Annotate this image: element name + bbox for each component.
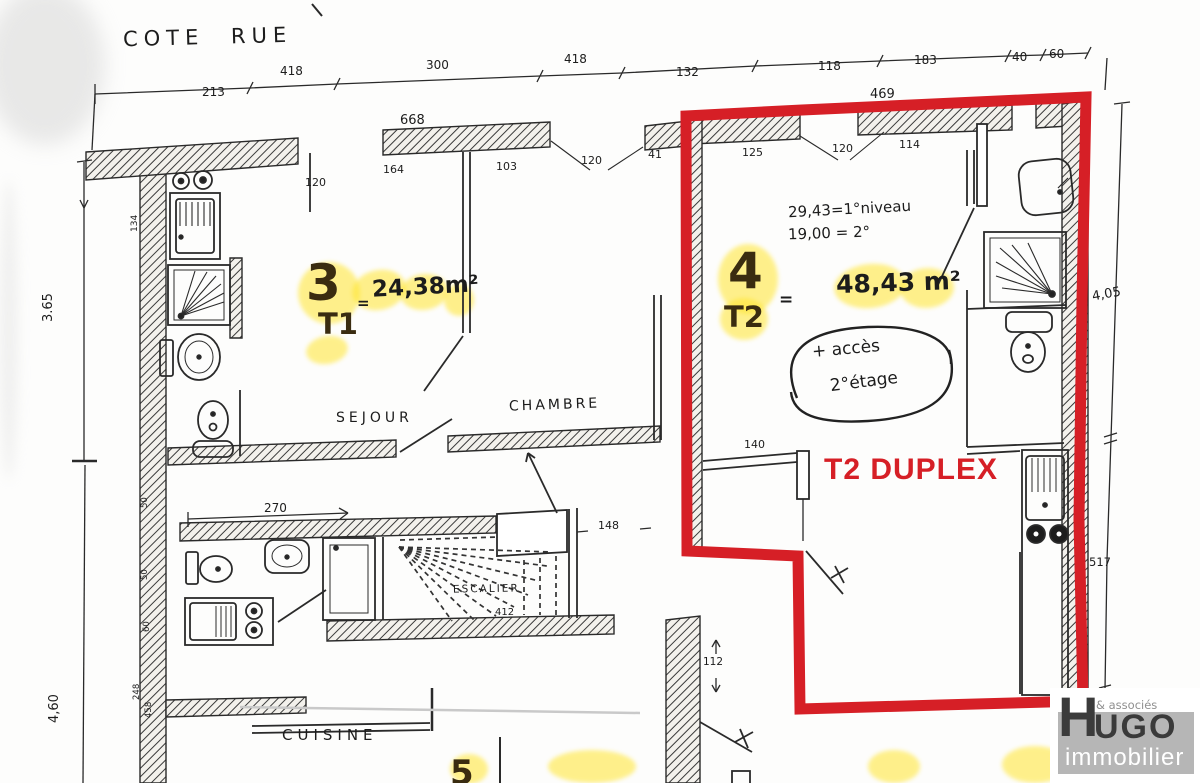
dim-row2: 120 <box>581 155 602 166</box>
dim-desk: 140 <box>744 439 765 450</box>
logo-immobilier-text: immobilier <box>1065 744 1184 772</box>
logo-letters-ugo: UGO <box>1094 708 1177 747</box>
dim-stairs: 412 <box>495 608 514 618</box>
logo-hugo-immobilier: & associés H UGO immobilier <box>1050 688 1200 783</box>
room-label-chambre: CHAMBRE <box>509 396 601 413</box>
apt3-number: 3 <box>306 258 341 308</box>
dim-top: 118 <box>818 60 841 72</box>
partial-room-number: 5 <box>450 756 474 783</box>
apt4-equals: = <box>779 292 793 309</box>
dim-row2: 120 <box>305 177 326 188</box>
walls <box>86 99 1088 783</box>
kitchen-sink-icon <box>170 193 220 259</box>
toilet-icon <box>186 552 232 584</box>
dim-left-seg: 458 <box>145 702 154 718</box>
apt4-level2: 19,00 = 2° <box>788 225 871 243</box>
dim-left-total: 4,60 <box>48 694 61 723</box>
dim-row2: 120 <box>832 143 853 154</box>
street-label: COTE RUE <box>123 25 293 50</box>
dim-left-seg: 134 <box>131 215 140 232</box>
plan-drawing <box>0 0 1200 783</box>
dim-row2: 41 <box>648 149 662 160</box>
stove-icon <box>173 171 212 189</box>
dim-top: 132 <box>676 66 699 78</box>
room-label-cuisine: CUISINE <box>282 728 378 743</box>
dim-row2: 114 <box>899 139 920 150</box>
dim-wall: 668 <box>400 114 425 127</box>
dim-left-seg: 248 <box>133 684 142 700</box>
kitchen-sink-icon <box>185 598 273 645</box>
apt4-fixtures <box>984 157 1075 695</box>
dim-right-lower: 517 <box>1089 557 1111 569</box>
kitchenette-icon <box>1022 450 1068 695</box>
dim-left-seg: 50 <box>141 497 150 508</box>
apt3-type: T1 <box>318 310 358 339</box>
corridor-fixtures <box>185 540 309 645</box>
apt3-fixtures <box>160 171 233 457</box>
dim-row2: 164 <box>383 164 404 175</box>
apt4-number: 4 <box>728 246 763 296</box>
apt4-area: 48,43 m² <box>836 268 962 297</box>
dim-top: 40 <box>1012 51 1027 63</box>
floor-plan-scan: COTE RUE 213 418 300 418 132 118 183 40 … <box>0 0 1200 783</box>
dim-top: 213 <box>202 86 225 98</box>
dim-left-seg: 60 <box>143 621 152 632</box>
room-label-sejour: SEJOUR <box>336 411 413 425</box>
dim-top: 60 <box>1049 48 1064 60</box>
dim-row2: 103 <box>496 161 517 172</box>
dim-left-seg: 50 <box>141 569 150 580</box>
room-label-escalier: ESCALIER <box>453 583 520 595</box>
dim-hall: 148 <box>598 520 619 531</box>
dim-row2: 125 <box>742 147 763 158</box>
logo-letter-h: H <box>1058 684 1098 749</box>
dim-top: 183 <box>914 54 937 66</box>
t2-duplex-label: T2 DUPLEX <box>824 455 998 485</box>
washbasin-icon <box>265 540 309 573</box>
shower-icon <box>168 265 230 325</box>
dim-door: 112 <box>703 657 723 668</box>
apt3-area: 24,38m² <box>371 273 479 302</box>
dim-left-total: 3.65 <box>42 293 55 322</box>
dim-corridor: 270 <box>264 502 287 514</box>
dim-top: 300 <box>426 59 449 71</box>
shower-icon <box>984 232 1066 308</box>
apt3-equals: = <box>357 296 370 311</box>
red-outline-t2-duplex <box>686 97 1086 709</box>
dim-wall: 469 <box>870 88 895 101</box>
washbasin-icon <box>160 334 220 380</box>
apt4-type: T2 <box>724 303 764 332</box>
dim-top: 418 <box>564 53 587 65</box>
toilet-icon <box>1006 312 1052 372</box>
dim-top: 418 <box>280 65 303 77</box>
